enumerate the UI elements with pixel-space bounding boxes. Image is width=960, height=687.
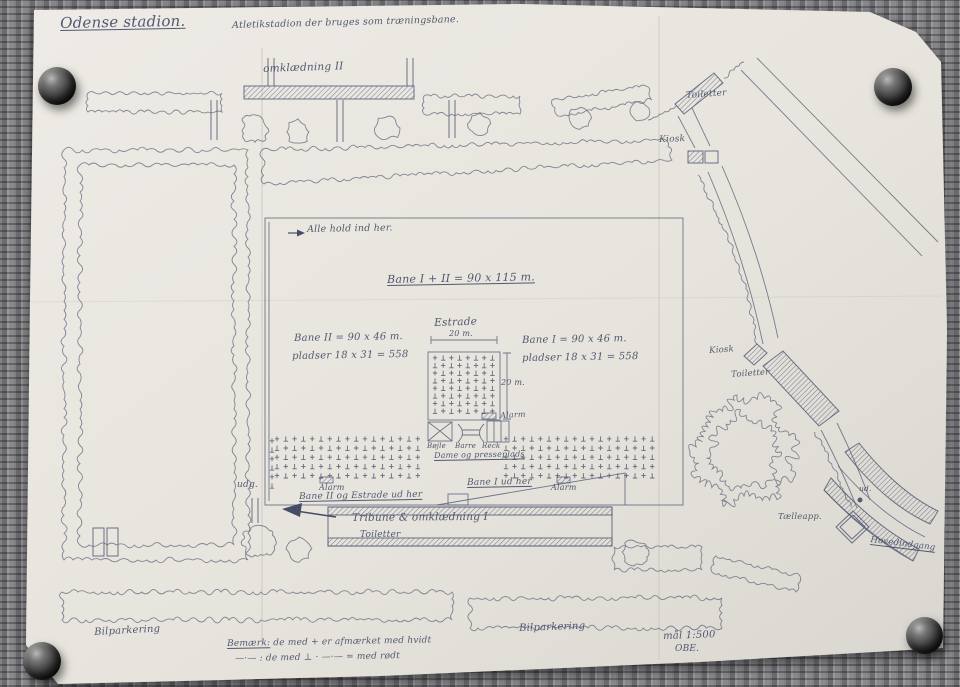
plan-svg [0,0,960,687]
paper-sheet [26,4,947,684]
magnet-pin-bottom-right [906,617,943,654]
magnet-pin-top-right [874,68,912,106]
magnet-pin-bottom-left [23,642,61,680]
building-kiosk-top [688,151,703,163]
magnet-pin-top-left [38,67,76,105]
building-omklaedning-2 [244,86,414,99]
alarm-box-estrade [482,413,496,419]
photo-scene: Odense stadion. Atletikstadion der bruge… [0,0,960,687]
